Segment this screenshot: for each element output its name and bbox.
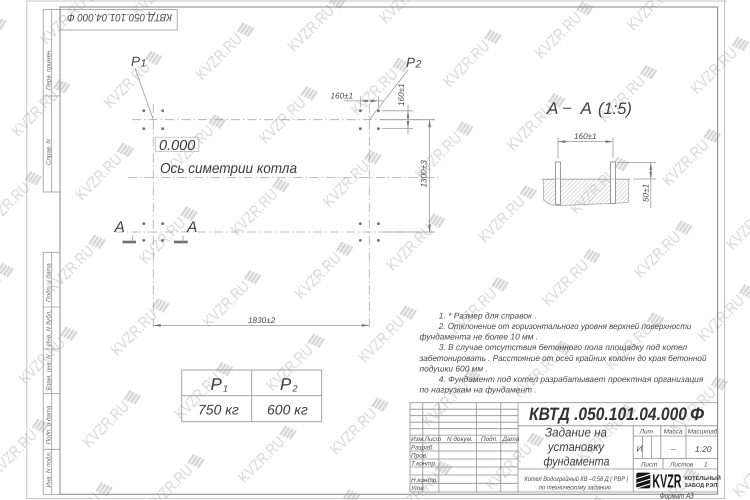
svg-text:Инв. N подл.: Инв. N подл. xyxy=(46,451,53,487)
svg-text:КВТД .050.101.04.000: КВТД .050.101.04.000 xyxy=(529,404,687,424)
svg-text:Подп.: Подп. xyxy=(481,436,498,443)
svg-text:Подп. и дата: Подп. и дата xyxy=(46,405,53,444)
svg-text:P: P xyxy=(131,54,140,69)
svg-text:Лист: Лист xyxy=(640,462,658,469)
svg-text:–: – xyxy=(562,99,572,116)
svg-text:Масса: Масса xyxy=(664,429,683,436)
svg-text:1830±2: 1830±2 xyxy=(248,316,276,325)
svg-text:P: P xyxy=(211,375,223,394)
svg-text:4. Фундамент под котел раз: 4. Фундамент под котел разрабатывает про… xyxy=(439,374,704,384)
svg-text:Т.контр.: Т.контр. xyxy=(411,461,437,468)
svg-text:подушки 600 мм .: подушки 600 мм . xyxy=(420,363,488,373)
svg-text:КВТД.050.101.04.000 Ф: КВТД.050.101.04.000 Ф xyxy=(67,11,172,23)
svg-text:Изм.Лист: Изм.Лист xyxy=(411,436,442,443)
svg-text:ЗАВОД РЭП: ЗАВОД РЭП xyxy=(684,483,717,489)
svg-text:Справ. N: Справ. N xyxy=(46,139,53,165)
svg-text:1: 1 xyxy=(141,58,147,70)
svg-text:A: A xyxy=(580,99,592,118)
svg-text:600 кг: 600 кг xyxy=(267,402,308,418)
svg-text:Взам. инв. N: Взам. инв. N xyxy=(46,354,53,391)
svg-text:160±1: 160±1 xyxy=(574,132,597,141)
svg-text:Формат А3: Формат А3 xyxy=(660,490,694,500)
svg-text:Утв.: Утв. xyxy=(410,485,426,492)
svg-text:Листов: Листов xyxy=(669,462,694,469)
svg-text:1300±3: 1300±3 xyxy=(420,160,429,188)
svg-text:Лит.: Лит. xyxy=(639,429,655,436)
svg-text:КОТЕЛЬНЫЙ: КОТЕЛЬНЫЙ xyxy=(684,474,720,482)
svg-text:Масштаб: Масштаб xyxy=(688,429,718,436)
svg-text:1:20: 1:20 xyxy=(695,444,712,454)
svg-text:A: A xyxy=(114,219,125,236)
svg-text:Подп. и дата: Подп. и дата xyxy=(46,263,53,302)
svg-text:Дата: Дата xyxy=(502,436,520,443)
svg-text:по техническому заданию: по техническому заданию xyxy=(539,484,611,491)
svg-text:И: И xyxy=(637,444,644,454)
svg-text:1: 1 xyxy=(704,462,708,469)
svg-text:(1:5): (1:5) xyxy=(598,100,632,118)
svg-text:750 кг: 750 кг xyxy=(198,402,239,418)
svg-text:A: A xyxy=(186,219,197,236)
svg-text:Инв. N дубл.: Инв. N дубл. xyxy=(46,310,53,346)
svg-text:1: 1 xyxy=(223,384,228,394)
svg-text:фундамента не более 10 мм: фундамента не более 10 мм . xyxy=(420,332,539,342)
svg-text:P: P xyxy=(280,375,292,394)
svg-text:забетонировать . Расстояние: забетонировать . Расстояние от осей край… xyxy=(419,353,707,363)
svg-text:Н.контр.: Н.контр. xyxy=(411,477,438,484)
svg-text:Пров.: Пров. xyxy=(411,453,428,460)
svg-text:50±1: 50±1 xyxy=(642,184,651,202)
svg-text:2: 2 xyxy=(415,59,422,71)
svg-text:Задание на: Задание на xyxy=(545,426,607,440)
svg-text:–: – xyxy=(670,444,676,454)
svg-text:установку: установку xyxy=(547,440,605,454)
svg-text:2: 2 xyxy=(292,384,298,394)
svg-text:1. * Размер для справок .: 1. * Размер для справок . xyxy=(439,310,537,320)
svg-text:Ось симетрии котла: Ось симетрии котла xyxy=(160,161,297,177)
svg-text:по нагрузкам на фундамент .: по нагрузкам на фундамент . xyxy=(420,385,537,395)
svg-text:N докум.: N докум. xyxy=(447,436,473,443)
svg-text:160±1: 160±1 xyxy=(397,83,406,106)
svg-text:2. Отклонение от горизонтал: 2. Отклонение от горизонтального уровня … xyxy=(438,321,692,331)
svg-text:Котел Водогрейный КВ –0,58: Котел Водогрейный КВ –0,58 Д ( РВР ) xyxy=(524,475,628,483)
svg-text:0.000: 0.000 xyxy=(159,138,195,154)
svg-text:Разраб.: Разраб. xyxy=(411,445,434,452)
svg-text:160±1: 160±1 xyxy=(331,92,354,101)
svg-text:A: A xyxy=(546,99,558,118)
svg-text:Ф: Ф xyxy=(690,404,704,424)
svg-text:P: P xyxy=(406,55,415,70)
svg-text:фундамента: фундамента xyxy=(544,455,610,469)
svg-text:3. В случае отсутствия бет: 3. В случае отсутствия бетонного пола пл… xyxy=(439,342,688,352)
svg-text:Перв. примен.: Перв. примен. xyxy=(46,49,53,90)
